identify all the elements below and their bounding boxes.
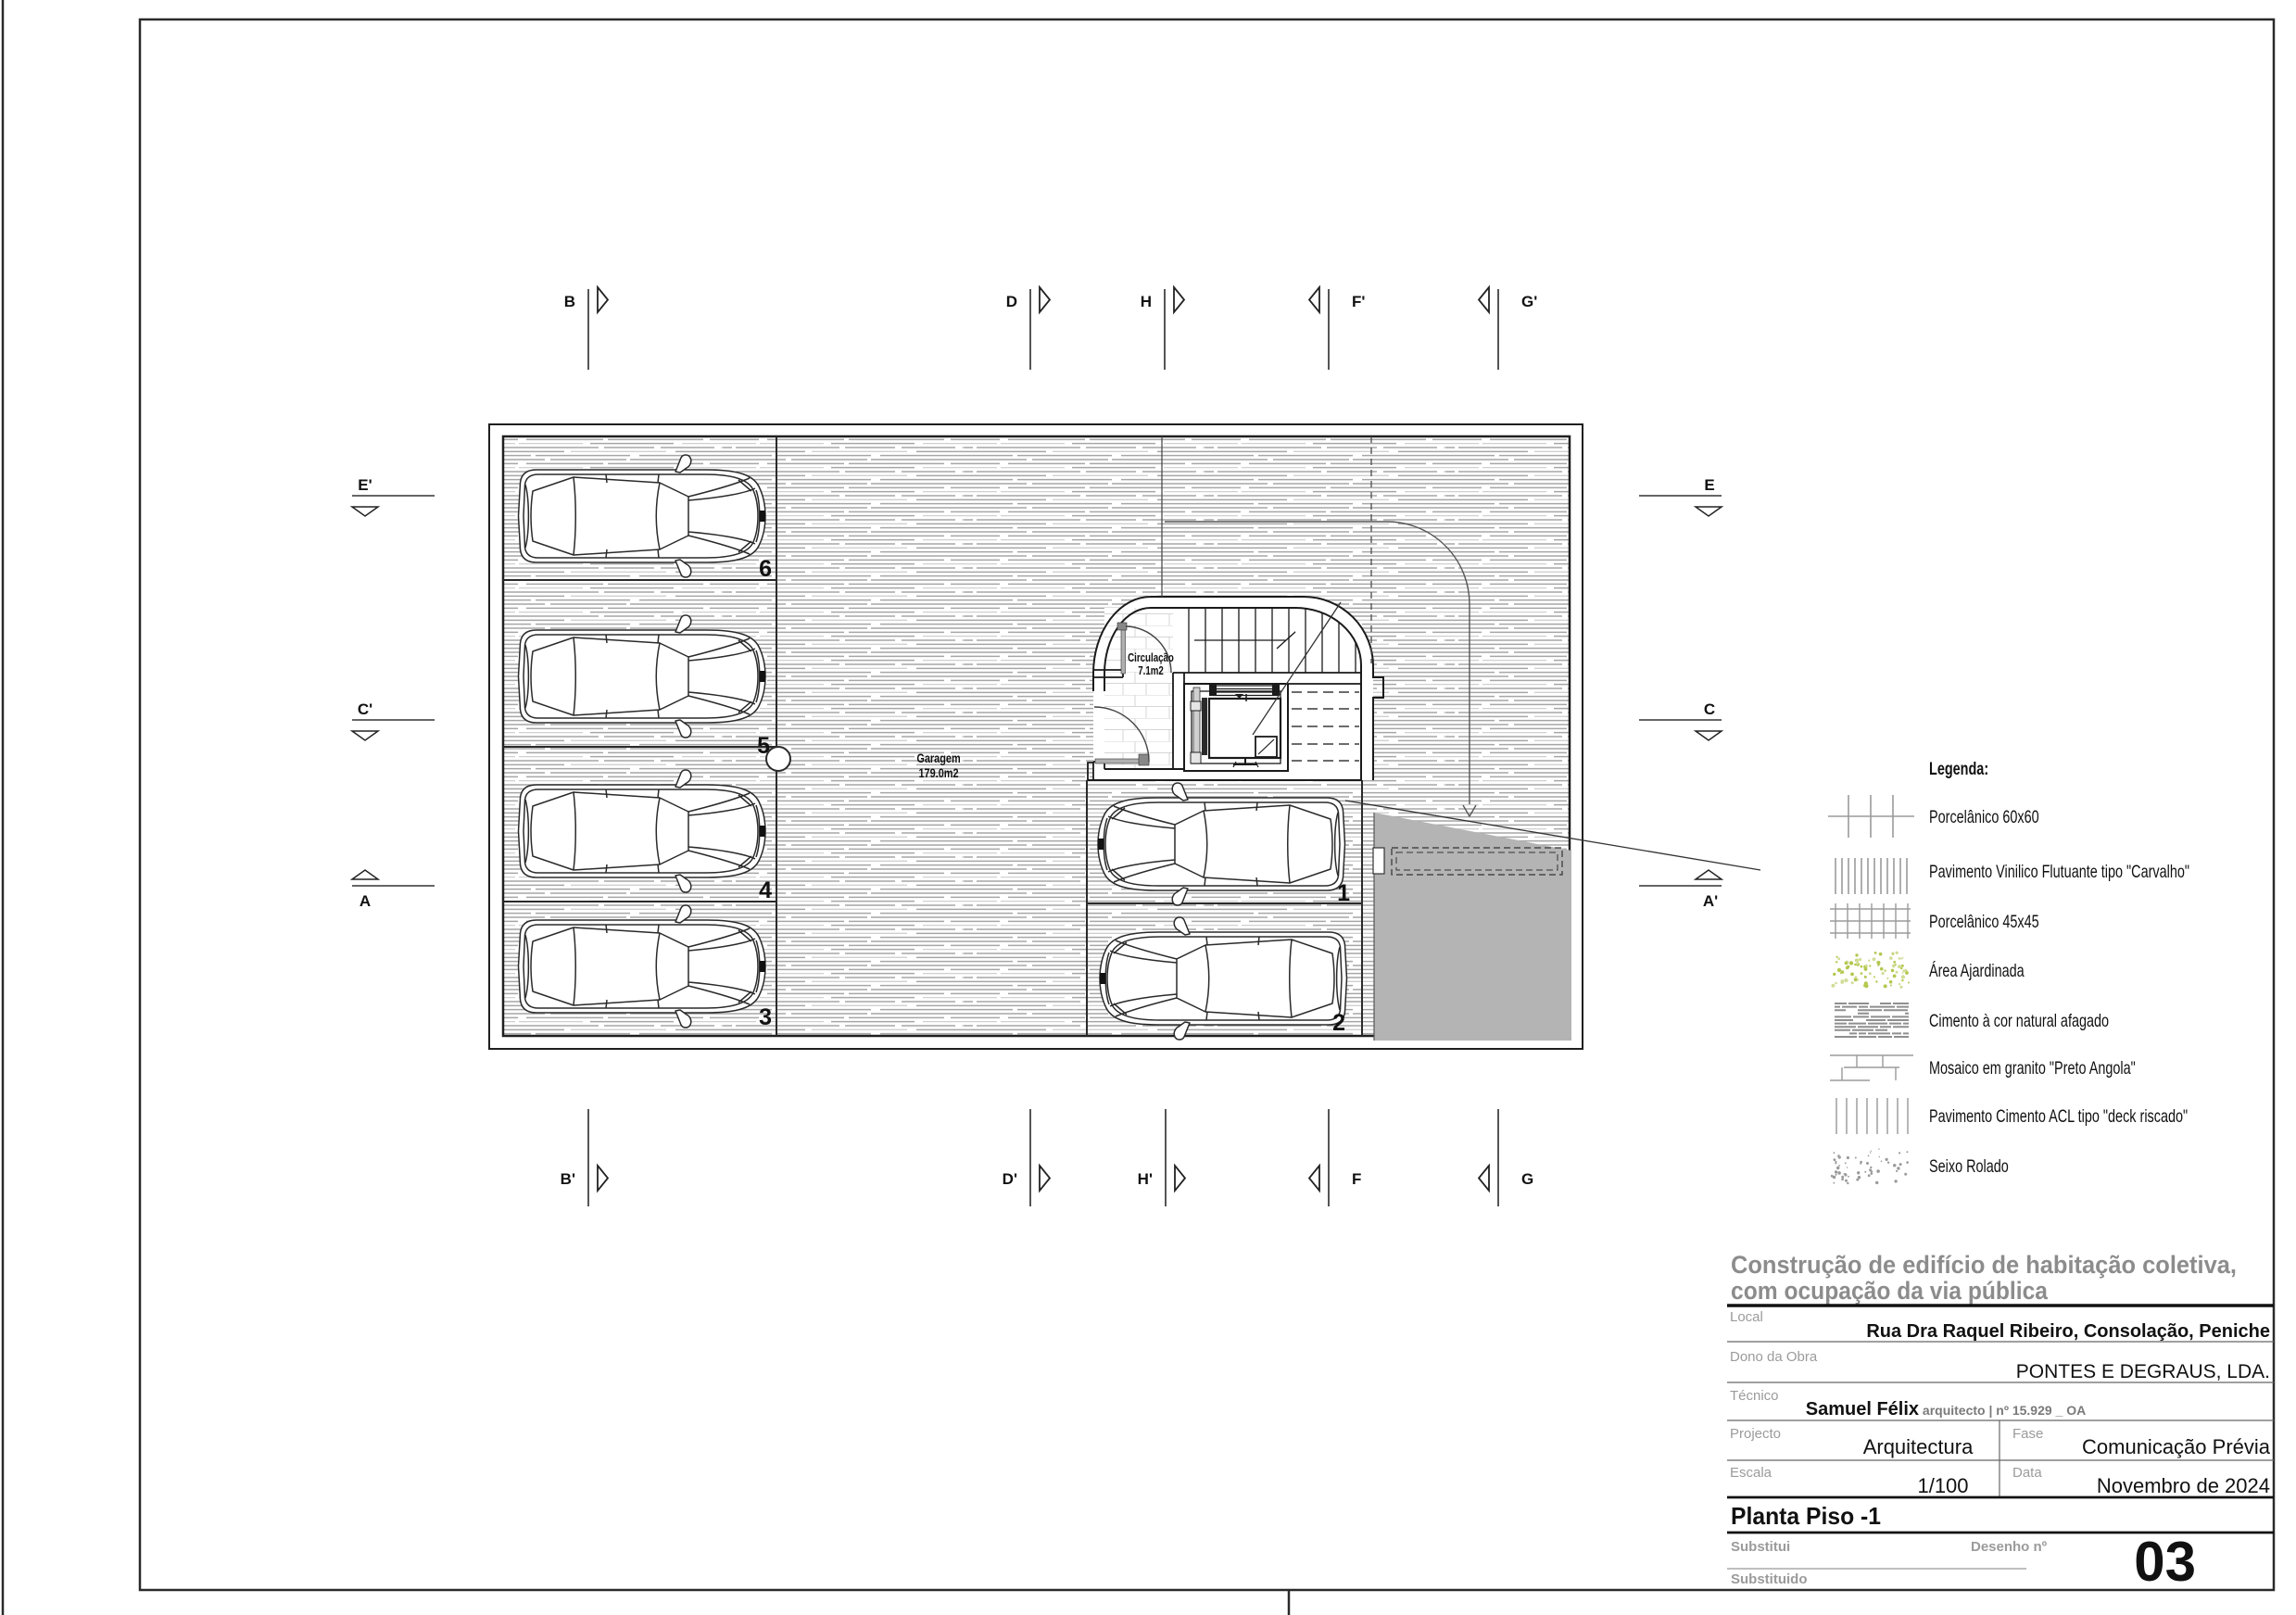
svg-text:F': F' [1352,293,1365,310]
svg-text:C: C [1704,700,1715,718]
svg-text:Escala: Escala [1730,1465,1772,1481]
svg-text:A: A [360,892,371,910]
svg-text:H: H [1141,293,1152,310]
svg-text:Comunicação Prévia: Comunicação Prévia [2082,1435,2271,1458]
svg-text:Rua Dra Raquel Ribeiro, Consol: Rua Dra Raquel Ribeiro, Consolação, Peni… [1866,1321,2270,1342]
svg-text:C': C' [358,700,372,718]
svg-text:com ocupação da via pública: com ocupação da via pública [1731,1277,2049,1305]
svg-text:B': B' [561,1170,575,1188]
svg-text:D': D' [1003,1170,1017,1188]
svg-text:6: 6 [759,556,772,582]
svg-text:F: F [1352,1170,1361,1188]
svg-text:Samuel Félix arquitecto | nº 1: Samuel Félix arquitecto | nº 15.929 _ OA [1806,1399,2086,1419]
svg-text:PONTES E DEGRAUS, LDA.: PONTES E DEGRAUS, LDA. [2016,1361,2270,1382]
svg-text:G: G [1521,1170,1533,1188]
svg-text:Dono da Obra: Dono da Obra [1730,1349,1818,1365]
svg-text:Técnico: Técnico [1730,1388,1779,1404]
svg-text:1/100: 1/100 [1917,1474,1968,1497]
svg-text:Data: Data [2012,1465,2042,1481]
svg-text:Porcelânico 60x60: Porcelânico 60x60 [1929,807,2039,826]
svg-text:Construção de edifício de habi: Construção de edifício de habitação cole… [1731,1251,2237,1279]
svg-text:B: B [564,293,575,310]
svg-text:1: 1 [1337,880,1350,906]
svg-text:Substituido: Substituido [1731,1571,1808,1587]
svg-text:H': H' [1138,1170,1153,1188]
svg-text:Novembro de 2024: Novembro de 2024 [2097,1474,2270,1497]
svg-text:Circulação: Circulação [1128,652,1174,664]
svg-text:Arquitectura: Arquitectura [1863,1435,1974,1458]
svg-text:Cimento à cor natural afagado: Cimento à cor natural afagado [1929,1011,2109,1030]
svg-text:2: 2 [1332,1010,1345,1036]
svg-text:Porcelânico 45x45: Porcelânico 45x45 [1929,912,2039,931]
svg-text:E: E [1704,476,1714,494]
svg-text:7.1m2: 7.1m2 [1138,665,1164,677]
svg-text:Projecto: Projecto [1730,1426,1781,1442]
svg-text:Área Ajardinada: Área Ajardinada [1929,961,2025,980]
svg-text:179.0m2: 179.0m2 [918,766,958,781]
svg-text:D: D [1006,293,1017,310]
svg-text:Substitui: Substitui [1731,1539,1790,1555]
svg-text:Pavimento Cimento ACL tipo "de: Pavimento Cimento ACL tipo "deck riscado… [1929,1106,2188,1126]
svg-text:Mosaico em granito "Preto Ango: Mosaico em granito "Preto Angola" [1929,1058,2136,1078]
svg-text:4: 4 [759,877,772,903]
svg-text:Local: Local [1730,1309,1763,1325]
svg-text:Garagem: Garagem [916,751,960,766]
svg-text:Pavimento Vinilico Flutuante t: Pavimento Vinilico Flutuante tipo "Carva… [1929,862,2189,881]
svg-text:Desenho nº: Desenho nº [1971,1539,2048,1555]
svg-text:A': A' [1703,892,1718,910]
svg-text:3: 3 [759,1004,772,1030]
svg-text:G': G' [1521,293,1537,310]
svg-text:E': E' [358,476,372,494]
svg-text:Legenda:: Legenda: [1929,759,1988,778]
svg-text:Fase: Fase [2012,1426,2043,1442]
svg-text:Planta Piso -1: Planta Piso -1 [1731,1502,1881,1530]
svg-text:03: 03 [2134,1531,2196,1593]
svg-text:Seixo Rolado: Seixo Rolado [1929,1156,2009,1176]
